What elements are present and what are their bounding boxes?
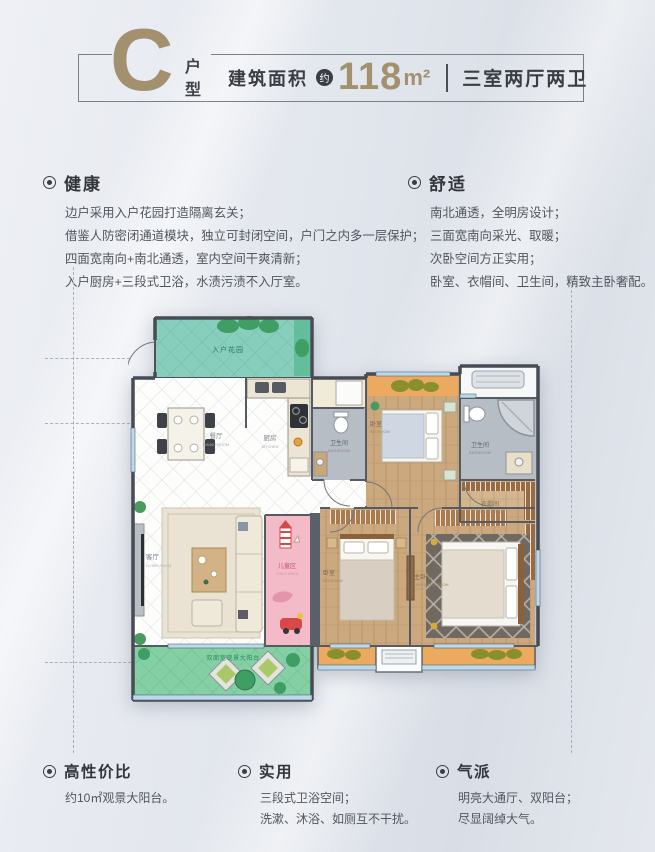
approx-badge: 约 bbox=[316, 69, 333, 86]
comfort-line: 卧室、衣帽间、卫生间，精致主卧奢配。 bbox=[430, 271, 653, 294]
label-bedroom-mid-en: BEDROOM bbox=[323, 579, 343, 583]
dimension-line bbox=[45, 662, 131, 663]
section-health: 健康 边户采用入户花园打造隔离玄关； 借鉴人防密闭通道模块，独立可封闭空间，户门… bbox=[43, 170, 408, 294]
unit-type-char-1: 户 bbox=[185, 56, 201, 79]
section-comfort: 舒适 南北通透，全明房设计； 三面宽南向采光、取暖； 次卧空间方正实用； 卧室、… bbox=[408, 170, 653, 294]
label-master: 主卧室 bbox=[414, 573, 432, 581]
label-dining: 餐厅 bbox=[210, 431, 224, 440]
label-bedroom-north: 卧室 bbox=[370, 420, 382, 428]
header-divider bbox=[446, 64, 448, 92]
label-bedroom-mid: 卧室 bbox=[323, 569, 335, 577]
label-living-en: LIVING ROOM bbox=[146, 564, 171, 568]
area-prefix: 建筑面积 bbox=[228, 65, 308, 91]
unit-type-label: 户 型 bbox=[185, 56, 201, 102]
label-master-en: MASTER BEDROOM bbox=[414, 583, 449, 587]
section-grand: 气派 明亮大通厅、双阳台； 尽显阔绰大气。 bbox=[436, 760, 616, 830]
label-living: 客厅 bbox=[146, 552, 160, 561]
dimension-line bbox=[45, 358, 130, 359]
left-leader-line bbox=[73, 267, 74, 753]
label-bathroom-1-en: BATHROOM bbox=[328, 449, 350, 453]
label-kids: 儿童区 bbox=[278, 562, 296, 570]
health-line: 边户采用入户花园打造隔离玄关； bbox=[65, 202, 408, 225]
health-line: 借鉴人防密闭通道模块，独立可封闭空间，户门之内多一层保护； bbox=[65, 225, 408, 248]
practical-bullet-icon bbox=[238, 765, 251, 778]
label-bathroom-1: 卫生间 bbox=[330, 439, 348, 447]
label-kids-en: CHILD AREA bbox=[276, 572, 299, 576]
section-practical: 实用 三段式卫浴空间； 洗漱、沐浴、如厕互不干扰。 bbox=[238, 760, 438, 830]
comfort-line: 次卧空间方正实用； bbox=[430, 248, 653, 271]
label-bedroom-north-en: BEDROOM bbox=[370, 430, 390, 434]
label-bathroom-2-en: BATHROOM bbox=[469, 451, 491, 455]
label-bathroom-2: 卫生间 bbox=[471, 441, 489, 449]
value-bullet-icon bbox=[43, 765, 56, 778]
dimension-line bbox=[45, 423, 130, 424]
label-entry-garden: 入户花园 bbox=[212, 345, 244, 354]
comfort-bullet-icon bbox=[408, 176, 421, 189]
label-cloakroom: 衣帽间 bbox=[481, 500, 499, 508]
practical-line: 三段式卫浴空间； bbox=[260, 788, 438, 809]
grand-line: 明亮大通厅、双阳台； bbox=[458, 788, 616, 809]
frame-top-left-segment bbox=[79, 54, 112, 55]
grand-line: 尽显阔绰大气。 bbox=[458, 809, 616, 830]
label-kitchen: 厨房 bbox=[264, 433, 277, 442]
floorplan-drawing: 入户花园 餐厅 DINING ROOM 厨房 KITCHEN 卫生间 BATHR… bbox=[128, 310, 542, 702]
grand-title: 气派 bbox=[457, 760, 491, 782]
label-kitchen-en: KITCHEN bbox=[262, 445, 279, 449]
unit-type-char-2: 型 bbox=[185, 79, 201, 102]
layout-text: 三室两厅两卫 bbox=[462, 64, 588, 91]
health-line: 入户厨房+三段式卫浴，水渍污渍不入厅室。 bbox=[65, 271, 408, 294]
wall-mass bbox=[310, 513, 320, 646]
area-unit: m² bbox=[403, 65, 430, 91]
floorplan-poster: { "header": { "type_letter": "C", "type_… bbox=[0, 0, 655, 852]
comfort-title: 舒适 bbox=[429, 170, 467, 195]
label-cloakroom-en: CLOAKROOM bbox=[478, 510, 503, 514]
health-title: 健康 bbox=[64, 170, 102, 195]
value-line: 约10㎡观景大阳台。 bbox=[65, 788, 233, 809]
right-leader-line bbox=[571, 275, 572, 753]
practical-line: 洗漱、沐浴、如厕互不干扰。 bbox=[260, 809, 438, 830]
health-bullet-icon bbox=[43, 176, 56, 189]
label-balcony: 双面宽观景大阳台 bbox=[206, 654, 260, 662]
section-value: 高性价比 约10㎡观景大阳台。 bbox=[43, 760, 233, 809]
area-row: 建筑面积 约 118 m² 三室两厅两卫 bbox=[228, 54, 588, 101]
unit-type-letter: C bbox=[110, 16, 174, 104]
label-dining-en: DINING ROOM bbox=[203, 443, 229, 447]
grand-bullet-icon bbox=[436, 765, 449, 778]
value-title: 高性价比 bbox=[64, 760, 132, 782]
health-line: 四面宽南向+南北通透，室内空间干爽清新； bbox=[65, 248, 408, 271]
comfort-line: 南北通透，全明房设计； bbox=[430, 202, 653, 225]
comfort-line: 三面宽南向采光、取暖； bbox=[430, 225, 653, 248]
area-value: 118 bbox=[338, 56, 402, 99]
practical-title: 实用 bbox=[259, 760, 293, 782]
